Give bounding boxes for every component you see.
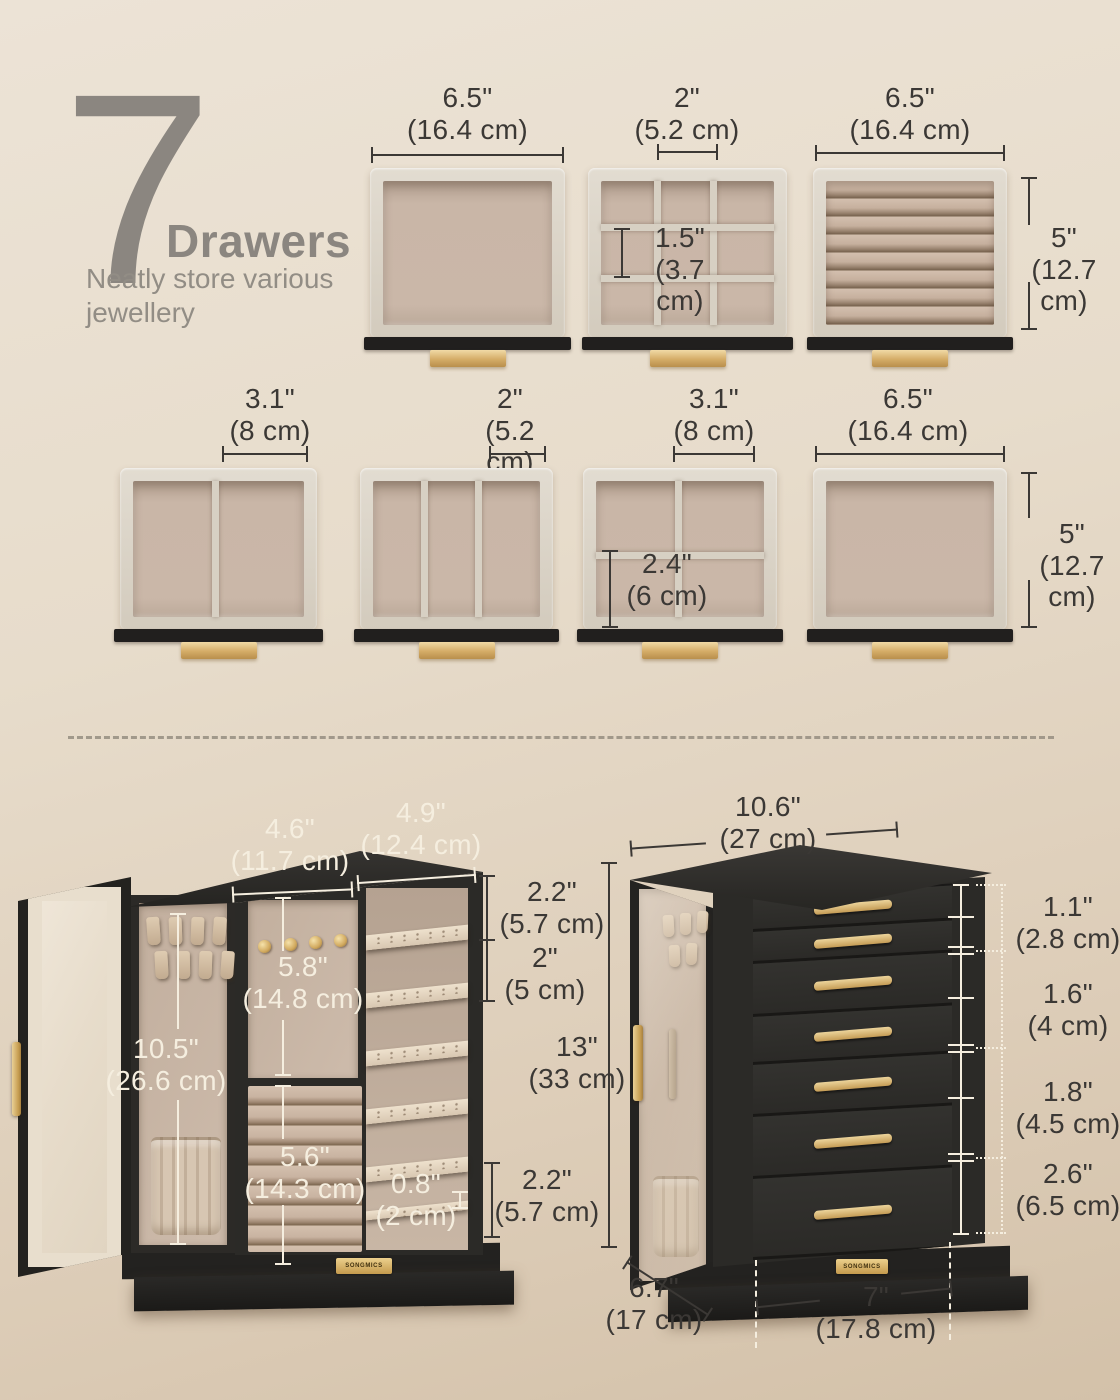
- dim-line: [459, 1191, 461, 1209]
- dim-line: [673, 453, 755, 455]
- dim-line: [177, 913, 179, 1029]
- drawer-front-strip: [354, 629, 559, 642]
- ruler-tick: [948, 916, 974, 918]
- guide-dotted: [1001, 884, 1003, 1234]
- drawer-gold-handle: [642, 642, 718, 659]
- title-word: Drawers: [166, 214, 351, 268]
- dim-row2-drawer1-width: 3.1" (8 cm): [222, 383, 318, 446]
- necklace-hook: [199, 951, 213, 979]
- gold-knob: [309, 936, 322, 949]
- divider: [421, 481, 428, 617]
- dim-line: [282, 1020, 284, 1076]
- dim-row1-drawer2-width: 2" (5.2 cm): [627, 82, 747, 145]
- dim-cabinet-width: 10.6" (27 cm): [706, 791, 830, 854]
- necklace-hook: [220, 951, 235, 980]
- closed-cabinet-front: [713, 877, 985, 1267]
- brand-logo-plate: SONGMICS: [836, 1259, 888, 1274]
- dim-line: [630, 842, 706, 849]
- dim-drawer-xl: 2.6" (6.5 cm): [1008, 1158, 1120, 1221]
- drawer-front-strip: [807, 629, 1013, 642]
- dim-shelf-gap: 2" (5 cm): [483, 942, 607, 1005]
- dim-row2-drawer3-width: 3.1" (8 cm): [666, 383, 762, 446]
- dim-cabinet-height: 13" (33 cm): [515, 1031, 639, 1094]
- dim-row2-drawer3-cell: 2.4" (6 cm): [617, 548, 717, 611]
- drawer-lining: [383, 181, 552, 325]
- ruler-tick: [948, 1160, 974, 1162]
- cabinet-drawer-7: [753, 1168, 952, 1260]
- earring-shelf: [366, 925, 468, 951]
- ruler-tick: [948, 1051, 974, 1053]
- drawer-gold-handle: [872, 642, 948, 659]
- drawer-open-topview: [370, 168, 565, 338]
- ruler-tick: [948, 1044, 974, 1046]
- dim-knob-panel: 5.8" (14.8 cm): [241, 951, 365, 1014]
- dim-line: [1028, 580, 1030, 628]
- dim-line: [282, 1205, 284, 1265]
- earring-shelf: [366, 983, 468, 1009]
- dim-drawer-small: 1.1" (2.8 cm): [1008, 891, 1120, 954]
- dim-rolls-height: 5.6" (14.3 cm): [243, 1141, 367, 1204]
- section-divider: [68, 736, 1054, 739]
- dim-door-height: 10.5" (26.6 cm): [104, 1033, 228, 1096]
- dim-row2-drawer2-width: 2" (5.2 cm): [462, 383, 558, 478]
- drawer-front-strip: [577, 629, 783, 642]
- dim-row1-drawer1-width: 6.5" (16.4 cm): [370, 82, 565, 145]
- drawer-handle: [813, 1026, 891, 1042]
- drawer-ruler: [960, 884, 962, 1235]
- dim-line: [815, 152, 1005, 154]
- door-glass: [639, 889, 706, 1281]
- drawer-ring-rolls-topview: [813, 168, 1007, 338]
- title-subtitle: Neatly store various jewellery: [86, 262, 333, 329]
- dim-row2-drawer4-height: 5" (12.7 cm): [1022, 518, 1120, 613]
- drawer-gold-handle: [872, 350, 948, 367]
- drawer-lining: [373, 481, 540, 617]
- dim-cabinet-depth: 6.7" (17 cm): [592, 1272, 716, 1335]
- drawer-lining: [133, 481, 304, 617]
- storage-pouch: [151, 1137, 221, 1235]
- dim-line: [1028, 282, 1030, 330]
- dim-row1-drawer3-width: 6.5" (16.4 cm): [813, 82, 1007, 145]
- drawer-gold-handle: [419, 642, 495, 659]
- infographic-canvas: 7 Drawers Neatly store various jewellery…: [0, 0, 1120, 1400]
- dim-shelf-gap-top: 2.2" (5.7 cm): [490, 876, 614, 939]
- drawer-gold-handle: [650, 350, 726, 367]
- dim-row2-drawer4-width: 6.5" (16.4 cm): [812, 383, 1004, 446]
- drawer-handle: [813, 976, 891, 992]
- ruler-tick: [948, 953, 974, 955]
- necklace-hook: [146, 917, 161, 946]
- drawer-front-strip: [582, 337, 793, 350]
- dim-line: [371, 154, 564, 156]
- dim-front-width: 7" (17.8 cm): [814, 1281, 938, 1344]
- dim-line: [1028, 472, 1030, 518]
- drawer-front-strip: [807, 337, 1013, 350]
- dim-bottom-section: 2.2" (5.7 cm): [485, 1164, 609, 1227]
- necklace-hook: [154, 951, 168, 980]
- dim-drawer-mid: 1.6" (4 cm): [1008, 978, 1120, 1041]
- drawer-front-strip: [364, 337, 571, 350]
- divider: [475, 481, 482, 617]
- dim-line: [282, 897, 284, 951]
- dim-open-top-right: 4.9" (12.4 cm): [359, 797, 483, 860]
- drawer-handle: [813, 1205, 891, 1221]
- ruler-tick: [948, 1097, 974, 1099]
- dim-open-top-left: 4.6" (11.7 cm): [228, 813, 352, 876]
- subtitle-line1: Neatly store various: [86, 262, 333, 296]
- dim-line: [826, 828, 898, 835]
- drawer-handle: [813, 1076, 891, 1092]
- cabinet-base-lower: [134, 1271, 514, 1312]
- dim-drawer-large: 1.8" (4.5 cm): [1008, 1076, 1120, 1139]
- dim-row1-drawer2-cell: 1.5" (3.7 cm): [630, 222, 730, 317]
- necklace-hook: [169, 917, 183, 945]
- dim-line: [609, 550, 611, 628]
- door-gold-handle: [633, 1025, 643, 1101]
- dim-line: [815, 453, 1005, 455]
- subtitle-line2: jewellery: [86, 296, 333, 330]
- drawer-handle: [813, 933, 891, 949]
- divider: [212, 481, 219, 617]
- dim-line: [282, 1085, 284, 1139]
- dim-line: [222, 453, 308, 455]
- drawer-2-slot-topview: [120, 468, 317, 630]
- brand-logo-plate: SONGMICS: [336, 1258, 392, 1274]
- cabinet-drawer-6: [753, 1106, 952, 1179]
- drawer-handle: [813, 1133, 891, 1149]
- drawer-gold-handle: [430, 350, 506, 367]
- drawer-front-strip: [114, 629, 323, 642]
- earring-shelf: [366, 1041, 468, 1067]
- drawer-3-slot-topview: [360, 468, 553, 630]
- drawer-stack: [753, 884, 952, 1260]
- dim-line: [489, 453, 546, 455]
- ruler-tick: [948, 1153, 974, 1155]
- drawer-gold-handle: [181, 642, 257, 659]
- earring-shelf: [366, 1099, 468, 1125]
- dim-line: [177, 1100, 179, 1245]
- drawer-lining: [826, 481, 994, 617]
- necklace-hook: [212, 917, 227, 946]
- gold-knob: [284, 938, 297, 951]
- necklace-hook: [191, 917, 205, 945]
- dim-line: [657, 151, 718, 153]
- door-gold-handle: [12, 1042, 21, 1116]
- drawer-open-topview: [813, 468, 1007, 630]
- door-glass: [42, 901, 107, 1253]
- dim-line: [486, 875, 488, 941]
- dim-line: [1028, 177, 1030, 225]
- dim-line: [621, 228, 623, 278]
- ruler-tick: [948, 997, 974, 999]
- gold-knob: [334, 934, 347, 947]
- ruler-tick: [948, 946, 974, 948]
- ring-rolls: [826, 181, 994, 325]
